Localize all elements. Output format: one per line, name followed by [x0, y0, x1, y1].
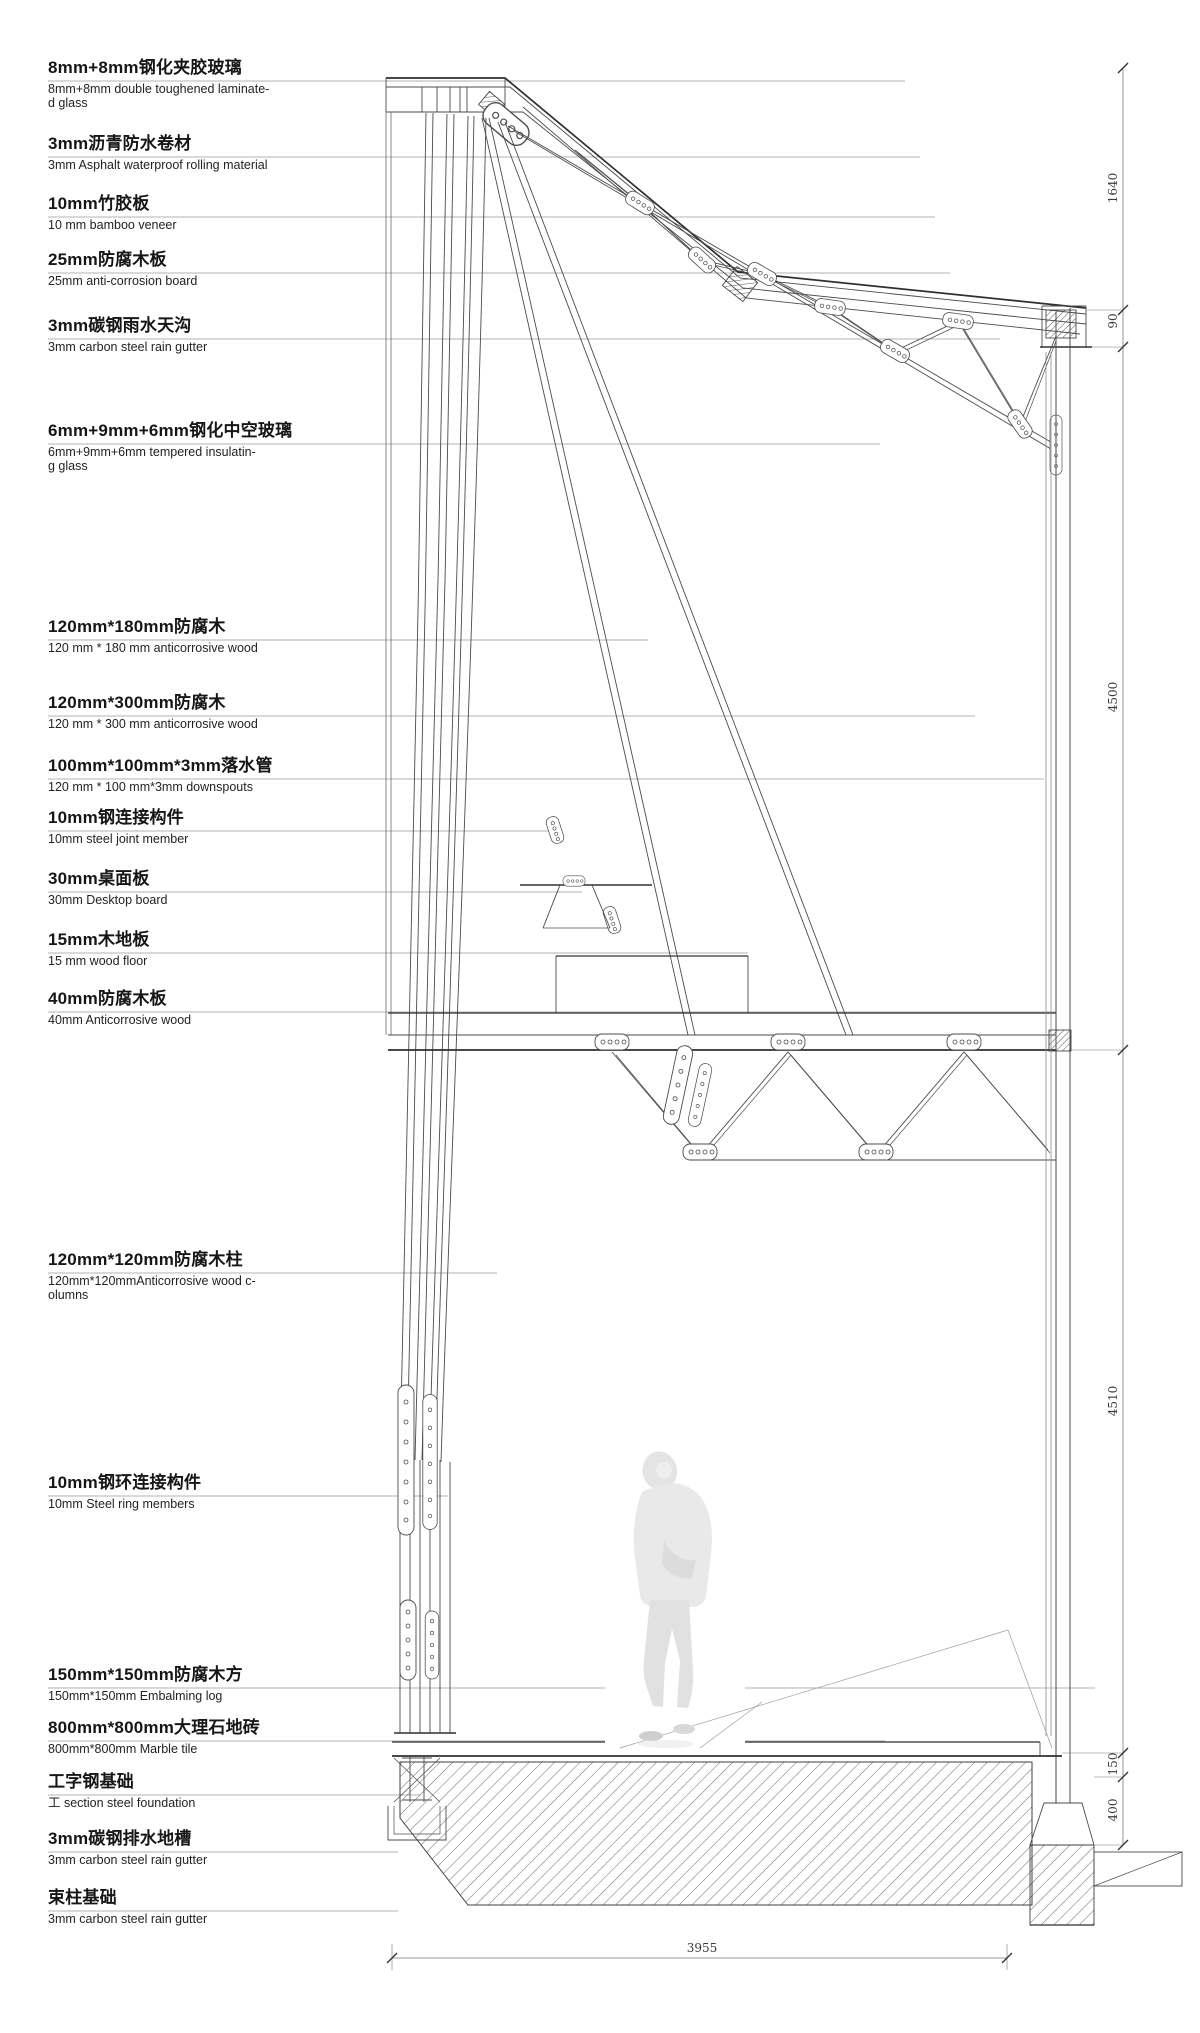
annotation-title-cn: 10mm钢环连接构件 [48, 1473, 310, 1493]
annotation-text-en: 25mm anti-corrosion board [48, 274, 310, 288]
architectural-section-sheet: 8mm+8mm钢化夹胶玻璃8mm+8mm double toughened la… [0, 0, 1200, 2033]
dimension-value-right: 150 [1106, 1742, 1120, 1786]
material-annotation: 10mm竹胶板10 mm bamboo veneer [48, 194, 310, 232]
annotation-title-cn: 3mm碳钢雨水天沟 [48, 316, 310, 336]
annotation-text-en: 8mm+8mm double toughened laminate- d gla… [48, 82, 310, 110]
material-annotation: 3mm碳钢排水地槽3mm carbon steel rain gutter [48, 1829, 310, 1867]
dimension-lines [387, 63, 1128, 1970]
annotation-text-en: 10mm steel joint member [48, 832, 310, 846]
annotation-title-cn: 25mm防腐木板 [48, 250, 310, 270]
annotation-text-en: 3mm carbon steel rain gutter [48, 1912, 310, 1926]
dimension-value-right: 4500 [1106, 675, 1120, 719]
annotation-text-en: 120 mm * 300 mm anticorrosive wood [48, 717, 310, 731]
annotation-title-cn: 8mm+8mm钢化夹胶玻璃 [48, 58, 310, 78]
material-annotation: 8mm+8mm钢化夹胶玻璃8mm+8mm double toughened la… [48, 58, 310, 110]
annotation-text-en: 120 mm * 180 mm anticorrosive wood [48, 641, 310, 655]
annotation-text-en: 30mm Desktop board [48, 893, 310, 907]
annotation-text-en: 15 mm wood floor [48, 954, 310, 968]
annotation-title-cn: 3mm碳钢排水地槽 [48, 1829, 310, 1849]
material-annotation: 800mm*800mm大理石地砖800mm*800mm Marble tile [48, 1718, 310, 1756]
material-annotation: 6mm+9mm+6mm钢化中空玻璃6mm+9mm+6mm tempered in… [48, 421, 310, 473]
material-annotation: 3mm碳钢雨水天沟3mm carbon steel rain gutter [48, 316, 310, 354]
floor-structure [388, 1013, 1071, 1160]
annotation-title-cn: 3mm沥青防水卷材 [48, 134, 310, 154]
material-annotation: 3mm沥青防水卷材3mm Asphalt waterproof rolling … [48, 134, 310, 172]
desk-and-platform [520, 876, 748, 1013]
human-figure [605, 1430, 1052, 1750]
annotation-title-cn: 800mm*800mm大理石地砖 [48, 1718, 310, 1738]
material-annotation: 100mm*100mm*3mm落水管120 mm * 100 mm*3mm do… [48, 756, 310, 794]
annotation-text-en: 10mm Steel ring members [48, 1497, 310, 1511]
annotation-text-en: 40mm Anticorrosive wood [48, 1013, 310, 1027]
dimension-value-right: 1640 [1106, 166, 1120, 210]
annotation-title-cn: 40mm防腐木板 [48, 989, 310, 1009]
annotation-title-cn: 120mm*180mm防腐木 [48, 617, 310, 637]
annotation-text-en: 150mm*150mm Embalming log [48, 1689, 310, 1703]
annotation-text-en: 6mm+9mm+6mm tempered insulatin- g glass [48, 445, 310, 473]
annotation-text-en: 3mm carbon steel rain gutter [48, 340, 310, 354]
annotation-text-en: 10 mm bamboo veneer [48, 218, 310, 232]
material-annotation: 15mm木地板15 mm wood floor [48, 930, 310, 968]
annotation-text-en: 120mm*120mmAnticorrosive wood c- olumns [48, 1274, 310, 1302]
material-annotation: 120mm*180mm防腐木120 mm * 180 mm anticorros… [48, 617, 310, 655]
annotation-title-cn: 100mm*100mm*3mm落水管 [48, 756, 310, 776]
annotation-title-cn: 120mm*300mm防腐木 [48, 693, 310, 713]
annotation-text-en: 800mm*800mm Marble tile [48, 1742, 310, 1756]
roof-assembly [386, 78, 1092, 347]
annotation-title-cn: 工字钢基础 [48, 1772, 310, 1792]
bundled-column [394, 1385, 456, 1733]
dimension-value-right: 400 [1106, 1788, 1120, 1832]
material-annotation: 40mm防腐木板40mm Anticorrosive wood [48, 989, 310, 1027]
annotation-text-en: 120 mm * 100 mm*3mm downspouts [48, 780, 310, 794]
annotation-title-cn: 120mm*120mm防腐木柱 [48, 1250, 310, 1270]
annotation-title-cn: 10mm钢连接构件 [48, 808, 310, 828]
material-annotation: 10mm钢连接构件10mm steel joint member [48, 808, 310, 846]
truss-fan [400, 113, 1062, 1462]
material-annotation: 150mm*150mm防腐木方150mm*150mm Embalming log [48, 1665, 310, 1703]
dimension-value-bottom: 3955 [667, 1941, 737, 1955]
dimension-value-right: 4510 [1106, 1379, 1120, 1423]
annotation-title-cn: 15mm木地板 [48, 930, 310, 950]
material-annotation: 120mm*300mm防腐木120 mm * 300 mm anticorros… [48, 693, 310, 731]
material-annotation: 10mm钢环连接构件10mm Steel ring members [48, 1473, 310, 1511]
annotation-title-cn: 30mm桌面板 [48, 869, 310, 889]
annotation-title-cn: 束柱基础 [48, 1888, 310, 1908]
material-annotation: 束柱基础3mm carbon steel rain gutter [48, 1888, 310, 1926]
annotation-text-en: 3mm Asphalt waterproof rolling material [48, 158, 310, 172]
annotation-title-cn: 6mm+9mm+6mm钢化中空玻璃 [48, 421, 310, 441]
material-annotation: 30mm桌面板30mm Desktop board [48, 869, 310, 907]
front-glazing [386, 112, 391, 1035]
material-annotation: 25mm防腐木板25mm anti-corrosion board [48, 250, 310, 288]
annotation-title-cn: 150mm*150mm防腐木方 [48, 1665, 310, 1685]
annotation-text-en: 3mm carbon steel rain gutter [48, 1853, 310, 1867]
annotation-title-cn: 10mm竹胶板 [48, 194, 310, 214]
dimension-value-right: 90 [1106, 299, 1120, 343]
annotation-text-en: 工 section steel foundation [48, 1796, 310, 1810]
material-annotation: 120mm*120mm防腐木柱120mm*120mmAnticorrosive … [48, 1250, 310, 1302]
material-annotation: 工字钢基础工 section steel foundation [48, 1772, 310, 1810]
right-column [1056, 308, 1070, 1803]
ground-foundation [388, 1742, 1182, 1925]
